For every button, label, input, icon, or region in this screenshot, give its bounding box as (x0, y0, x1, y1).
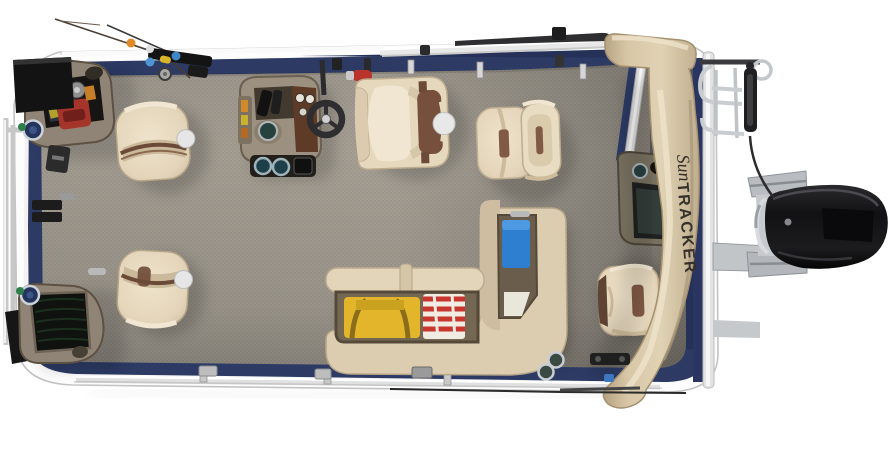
svg-text:Sun: Sun (673, 154, 695, 183)
